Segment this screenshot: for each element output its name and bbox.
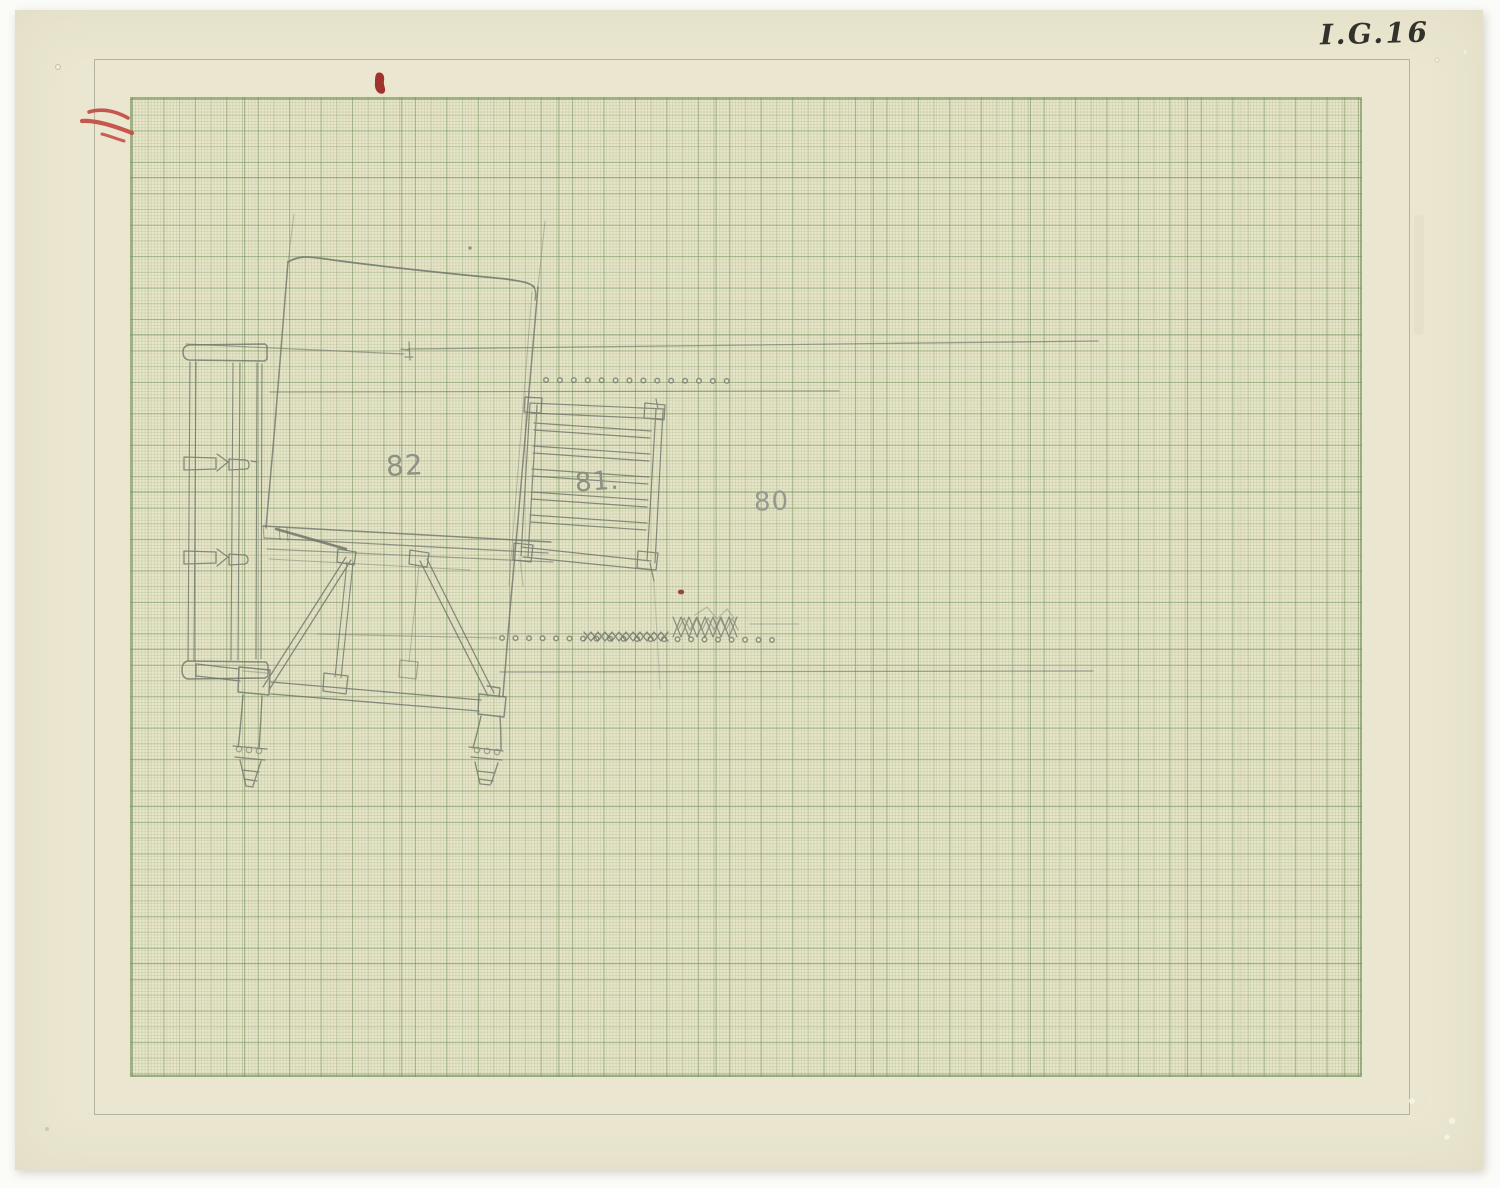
figure-label-81: 81.	[574, 467, 620, 496]
figure-label-82: 82	[385, 451, 424, 481]
scan-background: { "document": { "catalog_number": "I.G.1…	[0, 0, 1500, 1188]
catalog-number: I.G.16	[1320, 16, 1430, 52]
graph-grid	[130, 97, 1362, 1077]
figure-label-80: 80	[754, 488, 790, 515]
